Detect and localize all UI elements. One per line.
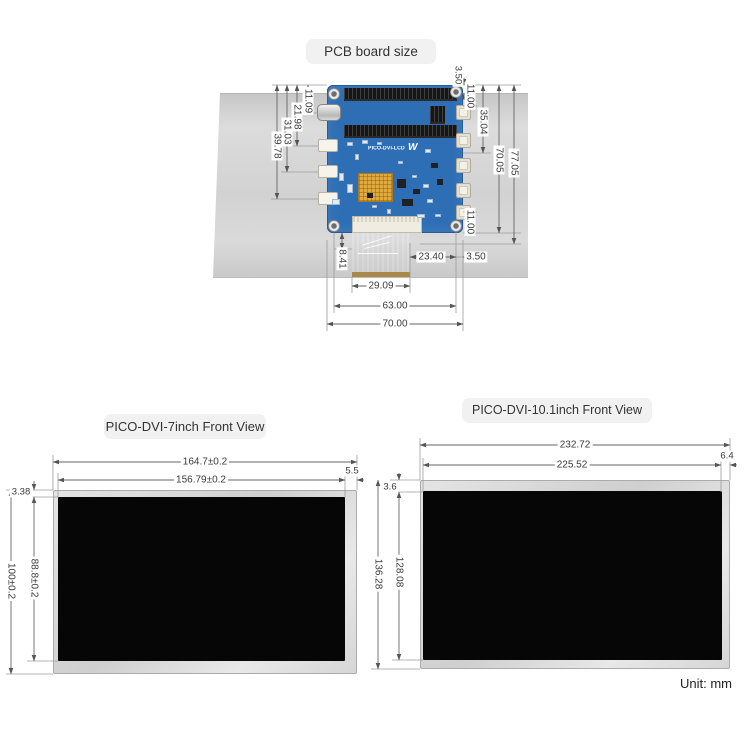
display-screen-10inch: [423, 491, 722, 660]
dim-label: 70.00: [380, 319, 409, 330]
smd-component: [339, 173, 344, 181]
smd-component: [427, 199, 433, 203]
ic-chip: [402, 199, 413, 206]
smd-component: [425, 149, 431, 153]
ffc-connector: [352, 216, 422, 233]
tactile-button: [456, 158, 471, 173]
mounting-hole: [328, 220, 340, 232]
mounting-hole: [450, 220, 462, 232]
dim-label: 88.8±0.2: [29, 557, 40, 600]
ic-chip: [397, 179, 406, 188]
gpio-header-row2: [344, 125, 457, 138]
dim-label: 232.72: [558, 440, 593, 451]
dim-label: 3.6: [381, 482, 398, 493]
ic-chip: [431, 163, 438, 168]
jumper-header: [430, 106, 445, 124]
cable-marking: [358, 253, 398, 254]
dim-label: 39.78: [272, 131, 283, 160]
unit-note: Unit: mm: [680, 676, 732, 691]
ic-chip: [437, 179, 443, 185]
dim-label: 23.40: [416, 252, 445, 263]
dim-label: 3.50: [464, 252, 487, 263]
pcb-section-title: PCB board size: [306, 39, 436, 64]
smd-component: [355, 154, 359, 160]
gold-ic-chip: [358, 173, 393, 202]
jst-connector: [318, 165, 338, 178]
dim-label: 3.50: [453, 64, 464, 87]
dim-label: 8.41: [337, 247, 348, 270]
dim-label: 31.03: [282, 117, 293, 146]
smd-component: [435, 214, 441, 217]
smd-component: [347, 142, 353, 146]
smd-component: [347, 184, 353, 193]
gpio-header-row1: [344, 88, 457, 101]
smd-component: [417, 214, 425, 218]
usb-c-port: [317, 104, 341, 121]
dim-label: 3.38: [10, 487, 33, 498]
dim-label: 128.08: [394, 555, 405, 590]
ic-chip: [413, 189, 420, 194]
dim-label: 63.00: [380, 301, 409, 312]
dim-label: 100±0.2: [6, 561, 17, 601]
dim-label: 6.4: [718, 451, 735, 462]
smd-component: [332, 199, 340, 205]
dim-label: 70.05: [494, 145, 505, 174]
pcb-board: PICO-DVI-LCD W: [327, 85, 463, 233]
dim-label: 225.52: [555, 460, 590, 471]
ic-chip: [367, 193, 373, 198]
dim-label: 11.00: [465, 82, 476, 110]
dimension-diagram: PCB board size PICO-DVI-LCD W PICO-DVI-7…: [0, 0, 750, 750]
smd-component: [423, 184, 429, 188]
view7-title: PICO-DVI-7inch Front View: [104, 414, 266, 439]
jst-connector: [318, 139, 338, 152]
dim-label: 77.05: [509, 148, 520, 177]
smd-component: [377, 142, 382, 145]
dim-label: 5.5: [343, 466, 360, 477]
mounting-hole: [328, 88, 340, 100]
flex-cable: [352, 231, 410, 277]
dim-label: 156.79±0.2: [174, 475, 228, 486]
smd-component: [387, 209, 391, 214]
dim-label: 11.09: [303, 87, 314, 115]
dim-label: 11.00: [465, 208, 476, 236]
dim-label: 21.98: [292, 102, 303, 131]
tactile-button: [456, 133, 471, 148]
view10-title: PICO-DVI-10.1inch Front View: [462, 398, 652, 423]
mounting-hole: [450, 86, 462, 98]
smd-component: [412, 175, 417, 178]
dim-label: 136.28: [373, 557, 384, 592]
dim-label: 29.09: [366, 281, 395, 292]
dim-label: 164.7±0.2: [181, 457, 229, 468]
smd-component: [362, 140, 368, 144]
waveshare-logo: W: [408, 142, 417, 153]
silkscreen-label: PICO-DVI-LCD: [368, 146, 405, 151]
display-screen-7inch: [58, 497, 345, 661]
smd-component: [398, 161, 403, 164]
smd-component: [372, 205, 377, 208]
dim-label: 35.04: [478, 107, 489, 136]
tactile-button: [456, 183, 471, 198]
